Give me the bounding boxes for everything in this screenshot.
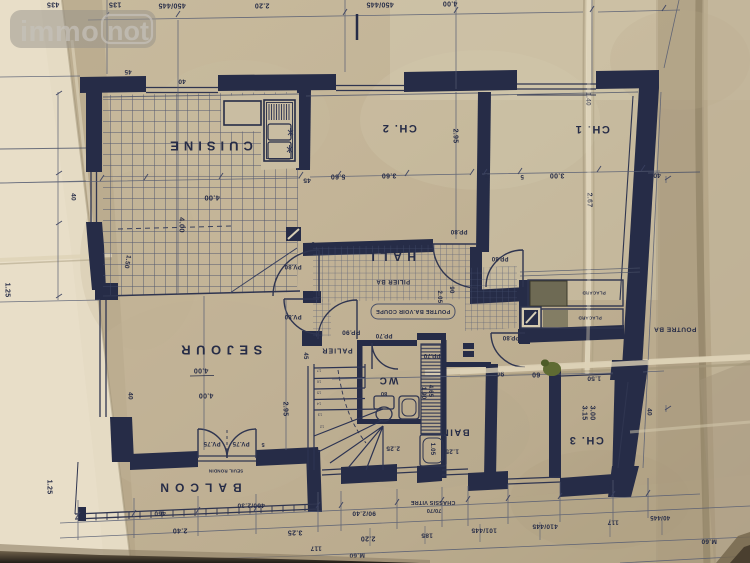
svg-text:4.00: 4.00 [199, 392, 214, 399]
svg-text:90/2.40: 90/2.40 [352, 510, 376, 517]
svg-text:immo: immo [20, 16, 99, 48]
svg-text:3.00: 3.00 [550, 172, 565, 179]
svg-text:4.00: 4.00 [194, 367, 209, 374]
svg-text:5: 5 [311, 240, 314, 246]
svg-text:101/445: 101/445 [471, 527, 497, 534]
svg-text:1.05: 1.05 [429, 443, 435, 456]
svg-text:117: 117 [607, 519, 618, 526]
svg-text:CHASSIS VITRE: CHASSIS VITRE [410, 499, 455, 505]
svg-text:not: not [107, 16, 149, 46]
svg-text:5: 5 [261, 441, 264, 447]
svg-text:2.95: 2.95 [452, 129, 459, 144]
svg-text:13: 13 [317, 412, 322, 417]
svg-text:3.60: 3.60 [382, 172, 397, 179]
svg-text:WC: WC [378, 374, 399, 385]
svg-text:117: 117 [310, 545, 321, 552]
svg-text:14: 14 [316, 401, 321, 406]
svg-text:PP.80: PP.80 [502, 334, 519, 340]
svg-text:PALIER: PALIER [321, 347, 352, 354]
svg-text:5: 5 [520, 173, 524, 179]
svg-text:450/445: 450/445 [366, 1, 393, 8]
svg-text:40: 40 [70, 193, 77, 201]
svg-text:45: 45 [303, 177, 311, 184]
svg-text:PILIER BA: PILIER BA [376, 278, 410, 284]
svg-text:17: 17 [316, 368, 321, 373]
svg-text:SEUIL RONDIN: SEUIL RONDIN [209, 468, 244, 473]
svg-text:185: 185 [421, 532, 433, 539]
svg-text:1.50: 1.50 [587, 375, 601, 382]
svg-text:1.25: 1.25 [4, 283, 11, 298]
svg-text:70/70: 70/70 [427, 507, 442, 513]
svg-text:PP.80: PP.80 [450, 228, 467, 234]
svg-text:135: 135 [109, 1, 122, 8]
svg-text:PV.80: PV.80 [284, 263, 302, 269]
svg-text:90: 90 [448, 286, 454, 294]
svg-text:4.00: 4.00 [177, 217, 186, 233]
svg-text:PP.70: PP.70 [423, 352, 440, 358]
svg-text:PP.80: PP.80 [491, 255, 508, 261]
svg-text:15: 15 [316, 390, 321, 395]
svg-text:3.15: 3.15 [581, 406, 588, 421]
svg-text:40: 40 [646, 408, 653, 416]
svg-text:460/2.30: 460/2.30 [237, 502, 265, 509]
svg-text:POUTRE BA: POUTRE BA [654, 326, 697, 333]
svg-text:3.25: 3.25 [288, 529, 303, 536]
svg-text:BALCON: BALCON [154, 481, 241, 495]
svg-text:40: 40 [178, 78, 186, 85]
svg-text:4.00: 4.00 [204, 193, 220, 202]
svg-text:80: 80 [381, 390, 388, 396]
svg-text:2.95: 2.95 [282, 402, 289, 417]
svg-text:2.20: 2.20 [255, 2, 270, 9]
svg-text:SEJOUR: SEJOUR [176, 342, 262, 357]
svg-text:1.25: 1.25 [445, 448, 459, 455]
svg-text:PV.80: PV.80 [284, 313, 302, 319]
svg-text:1.25: 1.25 [46, 480, 53, 495]
svg-text:2.40: 2.40 [173, 527, 188, 534]
svg-text:2.25: 2.25 [386, 445, 400, 452]
svg-text:3.00: 3.00 [589, 406, 596, 421]
svg-text:16: 16 [316, 379, 321, 384]
svg-text:40: 40 [653, 172, 661, 179]
svg-text:2.20: 2.20 [361, 535, 376, 542]
svg-text:40: 40 [127, 392, 134, 400]
svg-text:435: 435 [47, 1, 60, 8]
svg-text:BAIN: BAIN [440, 427, 469, 438]
svg-text:4.65: 4.65 [427, 385, 433, 398]
svg-text:PP.70: PP.70 [375, 332, 392, 338]
svg-text:60: 60 [532, 371, 540, 378]
svg-text:450/445: 450/445 [158, 2, 185, 9]
svg-text:45: 45 [124, 68, 132, 74]
svg-text:45: 45 [302, 352, 308, 360]
svg-text:CUISINE: CUISINE [165, 138, 253, 153]
svg-text:PV.75: PV.75 [203, 440, 221, 446]
svg-text:2.05: 2.05 [436, 291, 442, 304]
svg-text:M.60: M.60 [701, 538, 717, 545]
svg-text:PV.75: PV.75 [232, 440, 250, 446]
svg-text:CH. 1: CH. 1 [574, 123, 610, 135]
svg-text:410/445: 410/445 [532, 523, 558, 530]
svg-text:POUTRE BA.VOIR COUPE: POUTRE BA.VOIR COUPE [376, 308, 450, 314]
svg-text:460: 460 [154, 510, 166, 517]
svg-text:CH. 2: CH. 2 [381, 122, 417, 134]
svg-text:HALL: HALL [362, 250, 416, 264]
svg-text:CH. 3: CH. 3 [568, 434, 604, 446]
svg-text:1.90: 1.90 [420, 387, 426, 400]
svg-text:PLACARD: PLACARD [582, 290, 606, 295]
svg-text:12: 12 [319, 424, 324, 429]
svg-text:PP.90: PP.90 [342, 329, 360, 336]
svg-text:4.00: 4.00 [443, 0, 458, 7]
svg-text:40/445: 40/445 [650, 514, 671, 520]
